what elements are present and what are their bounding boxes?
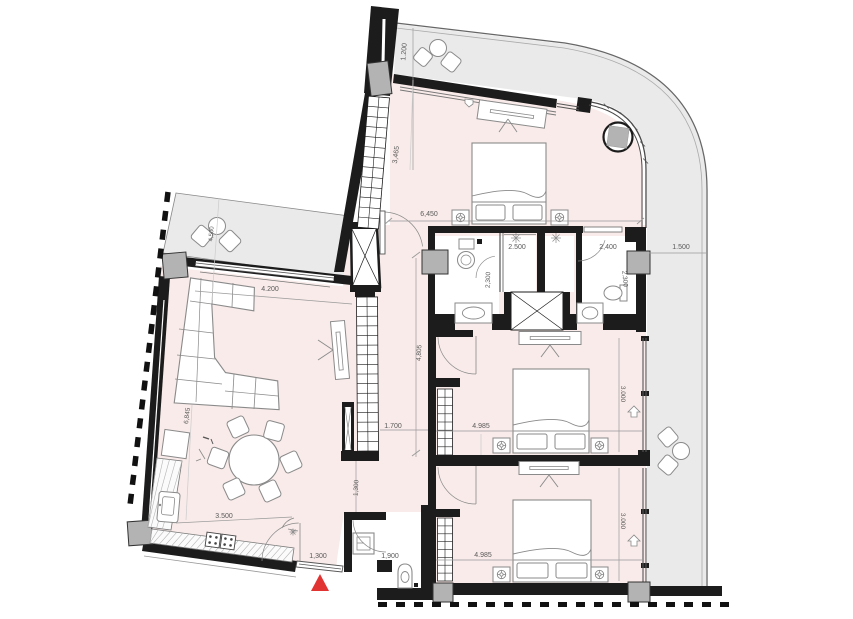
svg-text:4.200: 4.200 bbox=[261, 286, 279, 293]
svg-text:1.700: 1.700 bbox=[384, 423, 402, 430]
svg-text:4.985: 4.985 bbox=[474, 552, 492, 559]
svg-text:1,300: 1,300 bbox=[309, 553, 327, 560]
svg-text:4.985: 4.985 bbox=[472, 423, 490, 430]
svg-text:2.500: 2.500 bbox=[508, 244, 526, 251]
svg-text:1,900: 1,900 bbox=[381, 553, 399, 560]
svg-text:6,450: 6,450 bbox=[420, 211, 438, 218]
svg-text:3.000: 3.000 bbox=[619, 386, 626, 403]
svg-text:2.300: 2.300 bbox=[620, 270, 628, 287]
svg-text:4,805: 4,805 bbox=[416, 344, 424, 361]
svg-text:1.500: 1.500 bbox=[672, 244, 690, 251]
svg-text:2,400: 2,400 bbox=[599, 244, 617, 251]
svg-text:2,300: 2,300 bbox=[485, 271, 493, 288]
svg-text:3.500: 3.500 bbox=[215, 513, 233, 520]
svg-text:1,300: 1,300 bbox=[353, 479, 361, 496]
svg-text:3.000: 3.000 bbox=[619, 513, 626, 530]
